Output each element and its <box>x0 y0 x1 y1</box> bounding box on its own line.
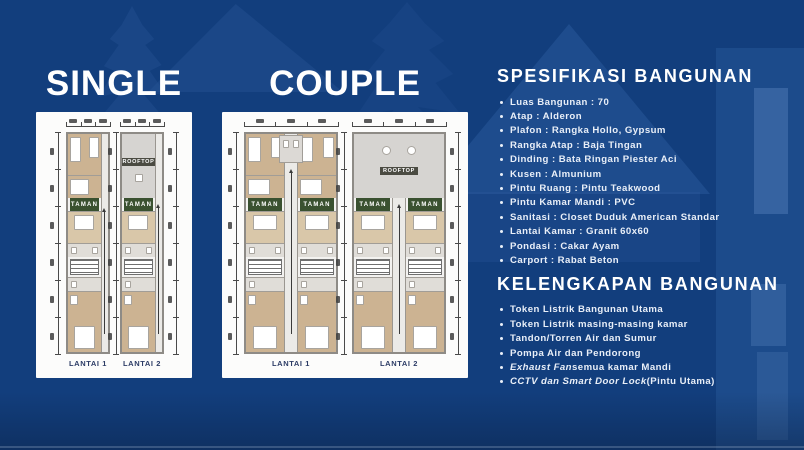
specifications-panel: SPESIFIKASI BANGUNAN Luas Bangunan : 70A… <box>497 66 801 389</box>
list-item-text: Lantai Kamar : Granit 60x60 <box>510 226 649 237</box>
dimension-number <box>228 148 232 155</box>
list-item: CCTV dan Smart Door Lock (Pintu Utama) <box>500 375 801 389</box>
dim-tick <box>173 169 179 170</box>
direction-arrow-line <box>291 173 292 334</box>
bullet-icon <box>500 352 503 355</box>
dimension-number <box>168 296 172 303</box>
room-band <box>68 211 101 243</box>
dimension-line-horizontal <box>66 119 110 130</box>
bath-fixture <box>71 281 77 288</box>
bath-fixture <box>357 247 363 254</box>
staircase <box>248 259 282 275</box>
room-band <box>246 211 284 243</box>
list-item-text: CCTV dan Smart Door Lock <box>510 376 647 387</box>
room-band <box>406 291 444 352</box>
list-item-text: Pintu Kamar Mandi : PVC <box>510 197 636 208</box>
dimension-number <box>450 296 454 303</box>
staircase <box>124 259 153 275</box>
dimension-number <box>256 119 264 123</box>
bullet-icon <box>500 366 503 369</box>
dim-line <box>244 126 338 127</box>
dimension-number <box>228 222 232 229</box>
room-band <box>246 243 284 257</box>
dim-tick <box>341 354 347 355</box>
dim-tick <box>113 317 119 318</box>
spesifikasi-list: Luas Bangunan : 70Atap : AlderonPlafon :… <box>500 95 801 268</box>
list-item: Luas Bangunan : 70 <box>500 95 801 109</box>
couple-section-title: COUPLE <box>222 64 468 104</box>
dimension-line-vertical <box>108 132 120 354</box>
dim-tick <box>455 206 461 207</box>
list-item-text: Dinding : Bata Ringan Piester Aci <box>510 154 677 165</box>
dimension-number <box>108 296 112 303</box>
dim-tick <box>446 122 447 127</box>
bed <box>128 326 149 349</box>
bed <box>305 215 329 230</box>
dim-tick <box>55 354 61 355</box>
dim-tick <box>341 132 347 133</box>
dimension-line-vertical <box>168 132 180 354</box>
dim-tick <box>233 132 239 133</box>
list-item: Plafon : Rangka Hollo, Gypsum <box>500 124 801 138</box>
taman-label: TAMAN <box>124 198 153 211</box>
room-band <box>122 211 155 243</box>
dimension-number <box>50 222 54 229</box>
bottom-shade-gradient <box>0 392 804 450</box>
dimension-number <box>84 119 92 123</box>
dim-line <box>66 126 110 127</box>
bullet-icon <box>500 129 503 132</box>
dim-tick <box>233 280 239 281</box>
room-band <box>246 291 284 352</box>
rooftop-label: ROOFTOP <box>120 158 158 166</box>
list-item-text: Tandon/Torren Air dan Sumur <box>510 333 657 344</box>
bed <box>74 215 94 230</box>
floorplan-single-floor1: TAMAN <box>66 132 110 354</box>
dim-tick <box>341 243 347 244</box>
dim-tick <box>113 354 119 355</box>
sink-fixture <box>382 146 391 155</box>
dim-tick <box>55 169 61 170</box>
bed <box>305 326 329 349</box>
bullet-icon <box>500 380 503 383</box>
dimension-line-vertical <box>336 132 348 354</box>
taman-label: TAMAN <box>300 198 334 211</box>
dimension-line-horizontal <box>244 119 338 130</box>
room-band <box>354 243 392 257</box>
dim-tick <box>341 280 347 281</box>
bath-fixture <box>327 247 333 254</box>
direction-arrow-head <box>156 204 160 208</box>
dim-tick <box>55 280 61 281</box>
dimension-number <box>168 148 172 155</box>
dimension-number <box>168 185 172 192</box>
dimension-number <box>50 296 54 303</box>
bath-fixture <box>293 140 299 148</box>
dim-tick <box>233 243 239 244</box>
bed <box>253 215 277 230</box>
dimension-number <box>336 185 340 192</box>
bed <box>70 179 89 195</box>
single-section-title: SINGLE <box>36 64 192 104</box>
room-band <box>298 211 336 243</box>
dimension-number <box>364 119 372 123</box>
dim-tick <box>415 122 416 127</box>
floorplan-couple-floor1: TAMANTAMAN <box>244 132 338 354</box>
bullet-icon <box>500 187 503 190</box>
dimension-number <box>168 259 172 266</box>
kelengkapan-list: Token Listrik Bangunan UtamaToken Listri… <box>500 303 801 389</box>
room-band <box>298 277 336 291</box>
floor-label: LANTAI 1 <box>58 359 118 368</box>
dimension-number <box>318 119 326 123</box>
bath-fixture <box>125 247 131 254</box>
bullet-icon <box>500 323 503 326</box>
dimension-number <box>426 119 434 123</box>
dimension-number <box>138 119 146 123</box>
room-band <box>246 277 284 291</box>
dimension-number <box>336 222 340 229</box>
list-item: Pintu Ruang : Pintu Teakwood <box>500 181 801 195</box>
dimension-number <box>450 333 454 340</box>
bullet-icon <box>500 101 503 104</box>
direction-arrow-line <box>104 212 105 334</box>
room-band <box>68 134 101 175</box>
dimension-number <box>50 259 54 266</box>
room-band <box>354 277 392 291</box>
list-item: Token Listrik masing-masing kamar <box>500 317 801 331</box>
dimension-number <box>336 333 340 340</box>
bed <box>361 215 385 230</box>
cabinet <box>124 295 132 305</box>
dim-tick <box>113 280 119 281</box>
dim-tick <box>164 122 165 127</box>
bath-fixture <box>249 281 255 288</box>
taman-label: TAMAN <box>70 198 99 211</box>
room-band <box>298 243 336 257</box>
list-item-text: Exhaust Fan <box>510 362 572 373</box>
list-item: Dinding : Bata Ringan Piester Aci <box>500 153 801 167</box>
dimension-line-horizontal <box>352 119 446 130</box>
bullet-icon <box>500 173 503 176</box>
bath-fixture <box>409 281 415 288</box>
cabinet <box>248 295 256 305</box>
floorplan-single-floor2: ROOFTOPTAMAN <box>120 132 164 354</box>
dimension-number <box>108 222 112 229</box>
room-band <box>298 134 336 175</box>
dimension-number <box>336 296 340 303</box>
dimension-number <box>99 119 107 123</box>
bullet-icon <box>500 259 503 262</box>
bed <box>413 326 437 349</box>
dimension-number <box>450 222 454 229</box>
bed <box>413 215 437 230</box>
floorplan-couple-floor2: ROOFTOPTAMANTAMAN <box>352 132 446 354</box>
direction-arrow-line <box>158 208 159 334</box>
list-item: Kusen : Almunium <box>500 167 801 181</box>
dimension-number <box>69 119 77 123</box>
rooftop-fixture <box>135 174 143 182</box>
bullet-icon <box>500 337 503 340</box>
room-band <box>246 175 284 198</box>
dimension-number <box>168 222 172 229</box>
list-item-text: Atap : Alderon <box>510 111 582 122</box>
bullet-icon <box>500 158 503 161</box>
dim-tick <box>233 169 239 170</box>
dimension-number <box>50 148 54 155</box>
list-item-text: Pondasi : Cakar Ayam <box>510 241 620 252</box>
dim-tick <box>113 206 119 207</box>
list-item: Pintu Kamar Mandi : PVC <box>500 196 801 210</box>
cabinet <box>356 295 364 305</box>
dimension-number <box>50 333 54 340</box>
room-band <box>122 291 155 352</box>
room-band <box>354 291 392 352</box>
bath-fixture <box>283 140 289 148</box>
room-band <box>354 211 392 243</box>
list-item: Pondasi : Cakar Ayam <box>500 239 801 253</box>
staircase <box>70 259 99 275</box>
bed <box>253 326 277 349</box>
dimension-number <box>168 333 172 340</box>
bath-fixture <box>383 247 389 254</box>
dim-tick <box>275 122 276 127</box>
room-band <box>68 243 101 257</box>
bed <box>300 179 322 195</box>
floor-label: LANTAI 1 <box>236 359 346 368</box>
list-item: Lantai Kamar : Granit 60x60 <box>500 225 801 239</box>
dimension-number <box>108 333 112 340</box>
kelengkapan-heading: KELENGKAPAN BANGUNAN <box>497 274 801 294</box>
dimension-number <box>228 259 232 266</box>
dimension-number <box>228 296 232 303</box>
dimension-number <box>450 185 454 192</box>
bath-fixture <box>301 281 307 288</box>
bath-fixture <box>409 247 415 254</box>
dim-tick <box>233 317 239 318</box>
bullet-icon <box>500 230 503 233</box>
dim-tick <box>307 122 308 127</box>
dim-tick <box>341 317 347 318</box>
dim-tick <box>383 122 384 127</box>
bath-fixture <box>249 247 255 254</box>
list-item: Rangka Atap : Baja Tingan <box>500 138 801 152</box>
dim-tick <box>173 280 179 281</box>
list-item: Carport : Rabat Beton <box>500 253 801 267</box>
list-item-text: Pompa Air dan Pendorong <box>510 348 641 359</box>
taman-label: TAMAN <box>408 198 442 211</box>
room-band <box>406 211 444 243</box>
dim-tick <box>173 317 179 318</box>
bullet-icon <box>500 201 503 204</box>
dim-tick <box>113 243 119 244</box>
bed <box>74 326 95 349</box>
bath-fixture <box>71 247 77 254</box>
direction-arrow-head <box>102 208 106 212</box>
bed <box>89 137 99 158</box>
dim-line <box>352 126 446 127</box>
dim-tick <box>341 169 347 170</box>
room-band <box>298 175 336 198</box>
bed <box>323 137 334 158</box>
dimension-line-horizontal <box>120 119 164 130</box>
dimension-line-vertical <box>50 132 62 354</box>
staircase <box>356 259 390 275</box>
spesifikasi-heading: SPESIFIKASI BANGUNAN <box>497 66 801 86</box>
rooftop-area: ROOFTOP <box>122 134 155 198</box>
couple-floorplan-card: TAMANTAMANLANTAI 1ROOFTOPTAMANTAMANLANTA… <box>222 112 468 378</box>
taman-label: TAMAN <box>248 198 282 211</box>
bullet-icon <box>500 115 503 118</box>
bath-fixture <box>301 247 307 254</box>
dimension-number <box>108 259 112 266</box>
list-item: Token Listrik Bangunan Utama <box>500 303 801 317</box>
list-item: Atap : Alderon <box>500 109 801 123</box>
bottom-light-line <box>0 446 804 448</box>
cabinet <box>408 295 416 305</box>
floor-label: LANTAI 2 <box>344 359 454 368</box>
staircase <box>408 259 442 275</box>
room-band <box>122 243 155 257</box>
dim-tick <box>173 132 179 133</box>
dimension-number <box>108 185 112 192</box>
bullet-icon <box>500 216 503 219</box>
list-item-text: Luas Bangunan : 70 <box>510 97 609 108</box>
dimension-number <box>153 119 161 123</box>
bath-fixture <box>146 247 152 254</box>
single-floorplan-card: TAMANLANTAI 1ROOFTOPTAMANLANTAI 2 <box>36 112 192 378</box>
room-band <box>68 291 101 352</box>
dim-tick <box>55 132 61 133</box>
taman-label: TAMAN <box>356 198 390 211</box>
dimension-number <box>287 119 295 123</box>
bullet-icon <box>500 308 503 311</box>
dimension-number <box>228 185 232 192</box>
bed <box>128 215 148 230</box>
dim-tick <box>149 122 150 127</box>
rooftop-label: ROOFTOP <box>380 167 418 175</box>
dimension-number <box>450 148 454 155</box>
dim-tick <box>110 122 111 127</box>
dim-tick <box>455 354 461 355</box>
room-band <box>406 243 444 257</box>
room-band <box>68 277 101 291</box>
list-item-text: Carport : Rabat Beton <box>510 255 619 266</box>
dim-tick <box>55 317 61 318</box>
list-item-text: Pintu Ruang : Pintu Teakwood <box>510 183 660 194</box>
bed <box>361 326 385 349</box>
list-item: Tandon/Torren Air dan Sumur <box>500 331 801 345</box>
list-item: Sanitasi : Closet Duduk American Standar <box>500 210 801 224</box>
dimension-line-vertical <box>450 132 462 354</box>
bath-fixture <box>357 281 363 288</box>
cabinet <box>300 295 308 305</box>
sink-fixture <box>407 146 416 155</box>
dim-tick <box>455 132 461 133</box>
direction-arrow-line <box>399 208 400 334</box>
bed <box>248 179 270 195</box>
dim-tick <box>55 243 61 244</box>
bullet-icon <box>500 245 503 248</box>
bath-fixture <box>125 281 131 288</box>
dimension-number <box>336 259 340 266</box>
dimension-number <box>450 259 454 266</box>
list-item-text: Rangka Atap : Baja Tingan <box>510 140 642 151</box>
cabinet <box>70 295 78 305</box>
list-item-text: Plafon : Rangka Hollo, Gypsum <box>510 125 666 136</box>
rooftop-area: ROOFTOP <box>354 134 444 198</box>
dim-tick <box>173 243 179 244</box>
room-band <box>68 175 101 198</box>
list-item: Pompa Air dan Pendorong <box>500 346 801 360</box>
dimension-number <box>108 148 112 155</box>
dimension-line-vertical <box>228 132 240 354</box>
list-item-text: Token Listrik masing-masing kamar <box>510 319 688 330</box>
dim-tick <box>338 122 339 127</box>
dim-tick <box>352 122 353 127</box>
direction-arrow-head <box>397 204 401 208</box>
dim-tick <box>233 206 239 207</box>
bath-fixture <box>92 247 98 254</box>
dim-tick <box>173 206 179 207</box>
staircase <box>300 259 334 275</box>
direction-arrow-head <box>289 169 293 173</box>
bullet-icon <box>500 144 503 147</box>
bath-fixture <box>275 247 281 254</box>
dim-tick <box>233 354 239 355</box>
list-item: Exhaust Fan semua kamar Mandi <box>500 360 801 374</box>
dim-tick <box>135 122 136 127</box>
room-band <box>406 277 444 291</box>
dim-tick <box>455 169 461 170</box>
bed <box>248 137 261 162</box>
dim-tick <box>455 317 461 318</box>
list-item-text: (Pintu Utama) <box>647 376 715 387</box>
room-band <box>122 277 155 291</box>
bed <box>70 137 81 162</box>
dimension-number <box>336 148 340 155</box>
dim-tick <box>341 206 347 207</box>
dim-tick <box>455 243 461 244</box>
dim-tick <box>455 280 461 281</box>
dimension-number <box>50 185 54 192</box>
poster-canvas: SINGLE COUPLE TAMANLANTAI 1ROOFTOPTAMANL… <box>0 0 804 450</box>
list-item-text: semua kamar Mandi <box>572 362 671 373</box>
dim-line <box>120 126 164 127</box>
room-band <box>298 291 336 352</box>
dim-tick <box>95 122 96 127</box>
dim-tick <box>120 122 121 127</box>
dimension-number <box>228 333 232 340</box>
list-item-text: Sanitasi : Closet Duduk American Standar <box>510 212 720 223</box>
dim-tick <box>113 132 119 133</box>
dimension-number <box>123 119 131 123</box>
dim-tick <box>55 206 61 207</box>
list-item-text: Kusen : Almunium <box>510 169 602 180</box>
dim-tick <box>173 354 179 355</box>
bath-fixture <box>435 247 441 254</box>
floor-label: LANTAI 2 <box>112 359 172 368</box>
dim-tick <box>81 122 82 127</box>
dim-tick <box>113 169 119 170</box>
utility-block <box>279 135 303 163</box>
dim-tick <box>66 122 67 127</box>
list-item-text: Token Listrik Bangunan Utama <box>510 304 663 315</box>
dim-tick <box>244 122 245 127</box>
dimension-number <box>395 119 403 123</box>
